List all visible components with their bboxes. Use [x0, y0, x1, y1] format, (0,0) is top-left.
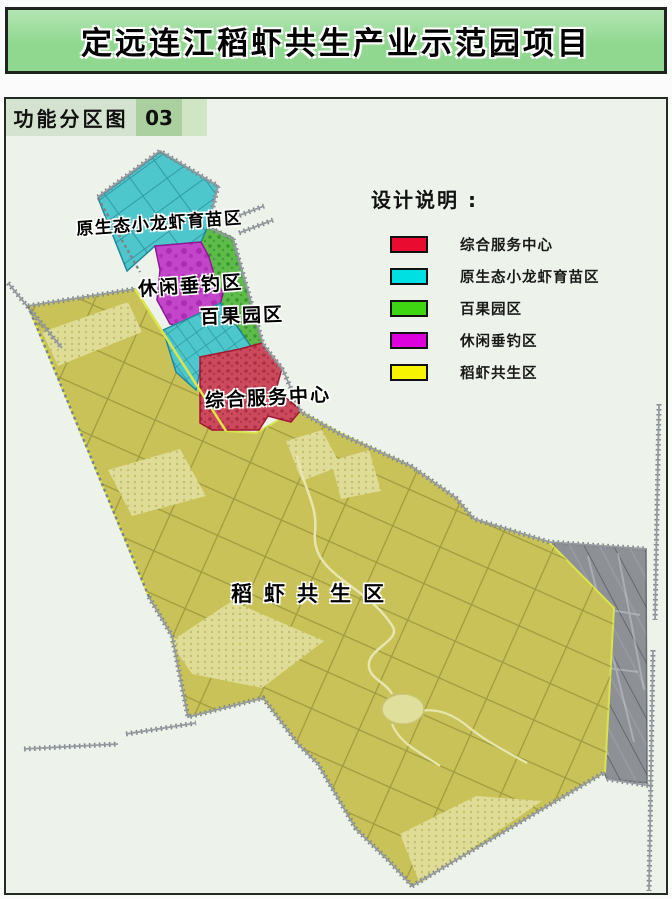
legend-label-leisure-fishing: 休闲垂钓区	[460, 330, 538, 351]
map-tag-number: 03	[136, 99, 182, 136]
legend-swatch-orchard	[390, 300, 428, 317]
legend-title: 设计说明 :	[371, 184, 651, 213]
legend-label-service-center: 综合服务中心	[460, 234, 553, 255]
legend-row: 休闲垂钓区	[371, 331, 651, 349]
legend: 设计说明 : 综合服务中心 原生态小龙虾育苗区 百果园区 休闲垂钓区 稻虾共生区	[371, 184, 651, 395]
legend-row: 综合服务中心	[371, 235, 651, 253]
legend-label-orchard: 百果园区	[460, 298, 522, 319]
map-tag: 功能分区图 03	[6, 99, 207, 136]
road-east-vertical	[649, 404, 659, 891]
legend-row: 百果园区	[371, 299, 651, 317]
map-label-rice-shrimp: 稻虾共生区	[231, 578, 396, 608]
legend-label-crayfish-nursery: 原生态小龙虾育苗区	[460, 266, 600, 287]
pond	[382, 694, 424, 724]
legend-swatch-crayfish-nursery	[390, 268, 428, 285]
map-tag-spacer	[182, 99, 207, 136]
road-southwest-stubs	[24, 723, 196, 749]
legend-swatch-service-center	[390, 236, 428, 253]
legend-row: 稻虾共生区	[371, 363, 651, 381]
legend-row: 原生态小龙虾育苗区	[371, 267, 651, 285]
legend-label-rice-shrimp: 稻虾共生区	[460, 362, 538, 383]
map-tag-label: 功能分区图	[6, 99, 136, 136]
legend-swatch-leisure-fishing	[390, 332, 428, 349]
legend-swatch-rice-shrimp	[390, 364, 428, 381]
map-label-orchard: 百果园区	[200, 300, 285, 330]
